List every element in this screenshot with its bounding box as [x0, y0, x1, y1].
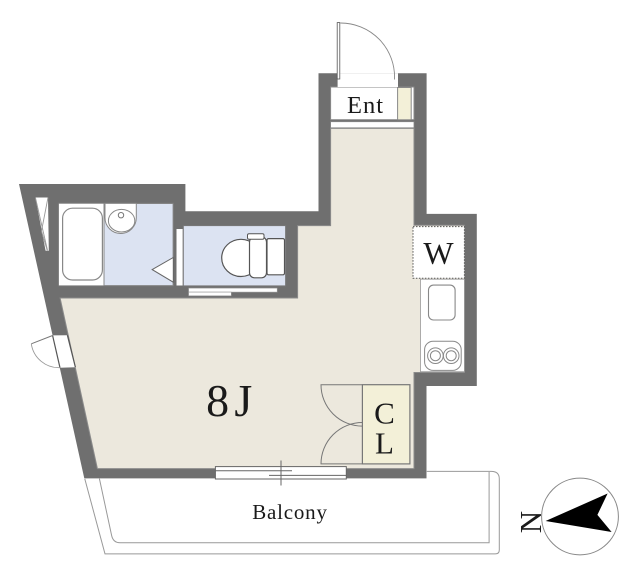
svg-text:Ent: Ent	[347, 92, 384, 119]
svg-text:L: L	[375, 426, 394, 461]
svg-text:8: 8	[206, 375, 229, 426]
svg-text:N: N	[513, 511, 548, 533]
svg-text:W: W	[423, 235, 454, 271]
svg-text:J: J	[234, 375, 252, 426]
svg-text:Balcony: Balcony	[252, 500, 328, 524]
